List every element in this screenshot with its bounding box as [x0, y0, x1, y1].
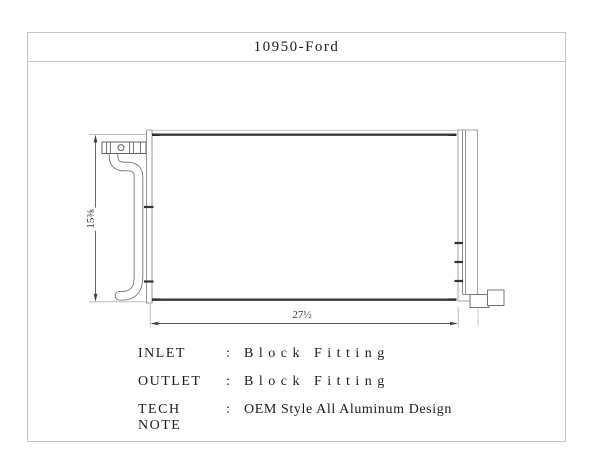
core-bottom-edge — [152, 298, 457, 301]
spec-row-inlet: INLET : Block Fitting — [138, 346, 558, 374]
dim-arrow-down — [94, 294, 98, 302]
width-dimension-label: 27½ — [290, 309, 313, 321]
inlet-value: Block Fitting — [244, 346, 390, 362]
height-dimension — [89, 135, 153, 302]
core-top-edge — [147, 130, 478, 136]
dim-arrow-right — [450, 322, 458, 326]
right-header-tank — [455, 130, 478, 301]
outlet-separator: : — [226, 374, 244, 390]
spec-row-outlet: OUTLET : Block Fitting — [138, 374, 558, 402]
inlet-label: INLET — [138, 346, 226, 362]
inlet-separator: : — [226, 346, 244, 362]
outlet-label: OUTLET — [138, 374, 226, 390]
inlet-pipe — [114, 150, 139, 296]
tech-note-value: OEM Style All Aluminum Design — [244, 402, 452, 418]
left-header-tank — [144, 130, 154, 303]
width-dimension — [150, 304, 478, 328]
dim-arrow-left — [150, 322, 158, 326]
drawing-page: { "title": "10950-Ford", "drawing": { "p… — [0, 0, 600, 474]
spec-list: INLET : Block Fitting OUTLET : Block Fit… — [138, 346, 558, 430]
inlet-block-fitting — [102, 142, 146, 154]
tech-note-label: TECH NOTE — [138, 402, 226, 434]
dim-arrow-up — [94, 135, 98, 143]
outlet-value: Block Fitting — [244, 374, 390, 390]
height-dimension-label: 15⅜ — [85, 207, 97, 230]
spec-row-tech-note: TECH NOTE : OEM Style All Aluminum Desig… — [138, 402, 558, 430]
tech-note-separator: : — [226, 402, 244, 418]
